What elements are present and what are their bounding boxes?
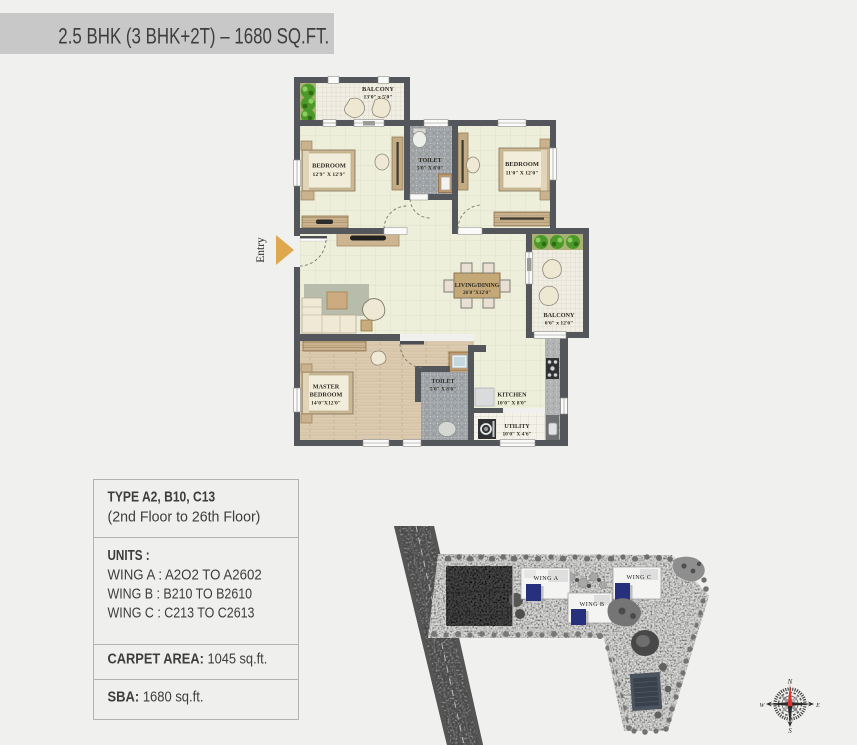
- svg-text:CARPET AREA: 1045 sq.ft.: CARPET AREA: 1045 sq.ft.: [108, 651, 268, 667]
- svg-text:10'0" X 8'0": 10'0" X 8'0": [497, 401, 527, 407]
- svg-text:Entry: Entry: [255, 237, 267, 263]
- svg-text:WING B: WING B: [580, 601, 605, 608]
- svg-text:TYPE A2, B10, C13: TYPE A2, B10, C13: [108, 489, 216, 505]
- svg-text:WING C : C213 TO C2613: WING C : C213 TO C2613: [108, 605, 255, 621]
- svg-text:KITCHEN: KITCHEN: [497, 392, 527, 399]
- svg-text:2.5 BHK (3 BHK+2T) – 1680 SQ.F: 2.5 BHK (3 BHK+2T) – 1680 SQ.FT.: [58, 24, 329, 49]
- svg-text:WING A : A2O2 TO A2602: WING A : A2O2 TO A2602: [108, 566, 262, 583]
- svg-text:TOILET: TOILET: [432, 379, 455, 385]
- svg-text:WING C: WING C: [627, 574, 652, 581]
- svg-text:WING A: WING A: [534, 575, 559, 582]
- svg-text:12'9" X 12'9": 12'9" X 12'9": [313, 172, 346, 178]
- svg-text:BALCONY: BALCONY: [362, 86, 394, 93]
- svg-text:MASTER: MASTER: [313, 384, 340, 391]
- svg-text:UNITS :: UNITS :: [108, 547, 150, 563]
- svg-text:14'0"X12'0": 14'0"X12'0": [311, 401, 341, 407]
- svg-text:5'0" X 8'0": 5'0" X 8'0": [417, 166, 443, 172]
- svg-text:BEDROOM: BEDROOM: [312, 163, 346, 170]
- svg-text:5'0" X 8'6": 5'0" X 8'6": [430, 387, 456, 393]
- svg-text:LIVING/DINING: LIVING/DINING: [455, 283, 500, 289]
- svg-text:WING B : B210 TO B2610: WING B : B210 TO B2610: [108, 586, 253, 602]
- svg-text:BEDROOM: BEDROOM: [310, 392, 343, 399]
- svg-text:N: N: [787, 678, 793, 686]
- svg-text:10'0" X 4'6": 10'0" X 4'6": [502, 432, 531, 438]
- svg-text:13'0" x 5'0": 13'0" x 5'0": [364, 95, 393, 101]
- svg-text:(2nd Floor to 26th Floor): (2nd Floor to 26th Floor): [108, 510, 261, 526]
- svg-text:26'0"X12'0": 26'0"X12'0": [463, 290, 491, 296]
- svg-text:S: S: [788, 727, 792, 735]
- svg-text:11'0" X 12'0": 11'0" X 12'0": [506, 171, 539, 177]
- svg-text:E: E: [815, 703, 820, 709]
- svg-text:TOILET: TOILET: [419, 158, 442, 164]
- svg-text:BEDROOM: BEDROOM: [505, 161, 539, 168]
- svg-text:BALCONY: BALCONY: [544, 312, 575, 319]
- svg-text:6'6" x 12'6": 6'6" x 12'6": [545, 321, 573, 327]
- svg-text:UTILITY: UTILITY: [504, 424, 530, 430]
- svg-text:SBA: 1680 sq.ft.: SBA: 1680 sq.ft.: [108, 689, 204, 705]
